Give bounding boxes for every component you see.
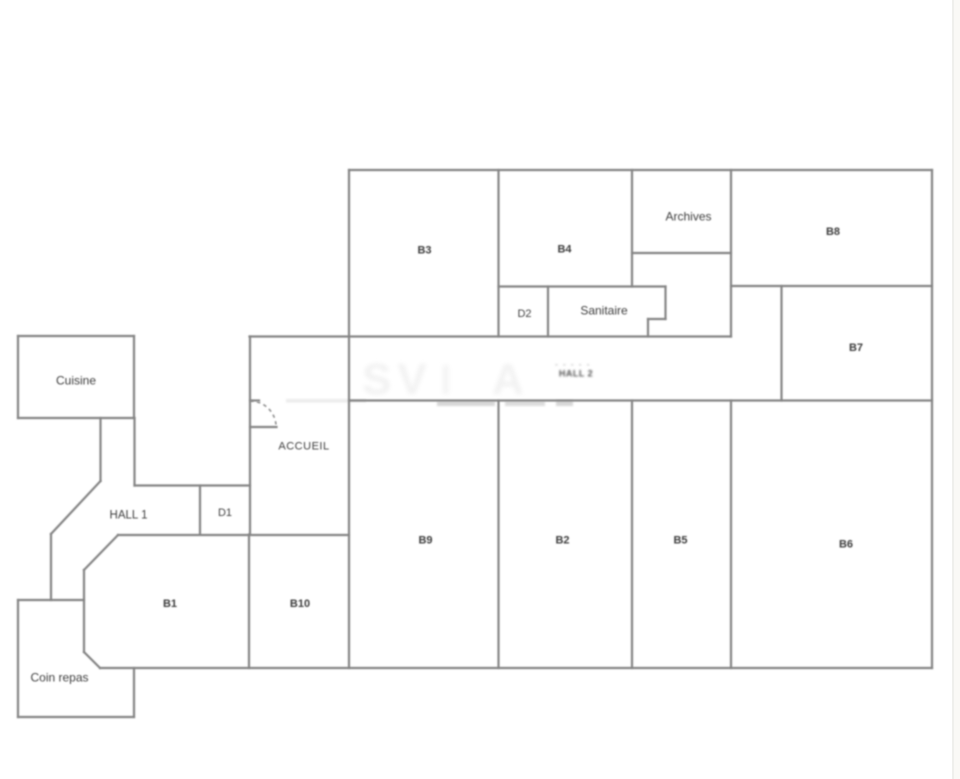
svg-text:ACCUEIL: ACCUEIL — [278, 441, 329, 453]
svg-text:B2: B2 — [555, 535, 569, 547]
svg-text:B1: B1 — [163, 598, 177, 610]
svg-text:D1: D1 — [218, 507, 232, 519]
svg-text:D2: D2 — [517, 308, 531, 320]
svg-text:Archives: Archives — [665, 210, 711, 224]
svg-text:Sanitaire: Sanitaire — [580, 304, 628, 318]
svg-text:B9: B9 — [418, 535, 432, 547]
svg-text:B8: B8 — [826, 226, 840, 238]
svg-text:B3: B3 — [417, 245, 431, 257]
svg-text:A: A — [492, 355, 524, 404]
svg-text:B5: B5 — [673, 535, 687, 547]
svg-text:B7: B7 — [849, 342, 863, 354]
svg-text:SV: SV — [362, 355, 433, 404]
svg-text:B10: B10 — [290, 598, 310, 610]
svg-text:B4: B4 — [557, 244, 572, 256]
svg-text:B6: B6 — [839, 539, 853, 551]
svg-text:HALL 2: HALL 2 — [559, 369, 593, 379]
svg-text:I: I — [440, 356, 452, 403]
svg-text:Coin repas: Coin repas — [30, 671, 88, 685]
svg-text:Cuisine: Cuisine — [56, 374, 96, 388]
svg-text:HALL 1: HALL 1 — [110, 510, 148, 522]
